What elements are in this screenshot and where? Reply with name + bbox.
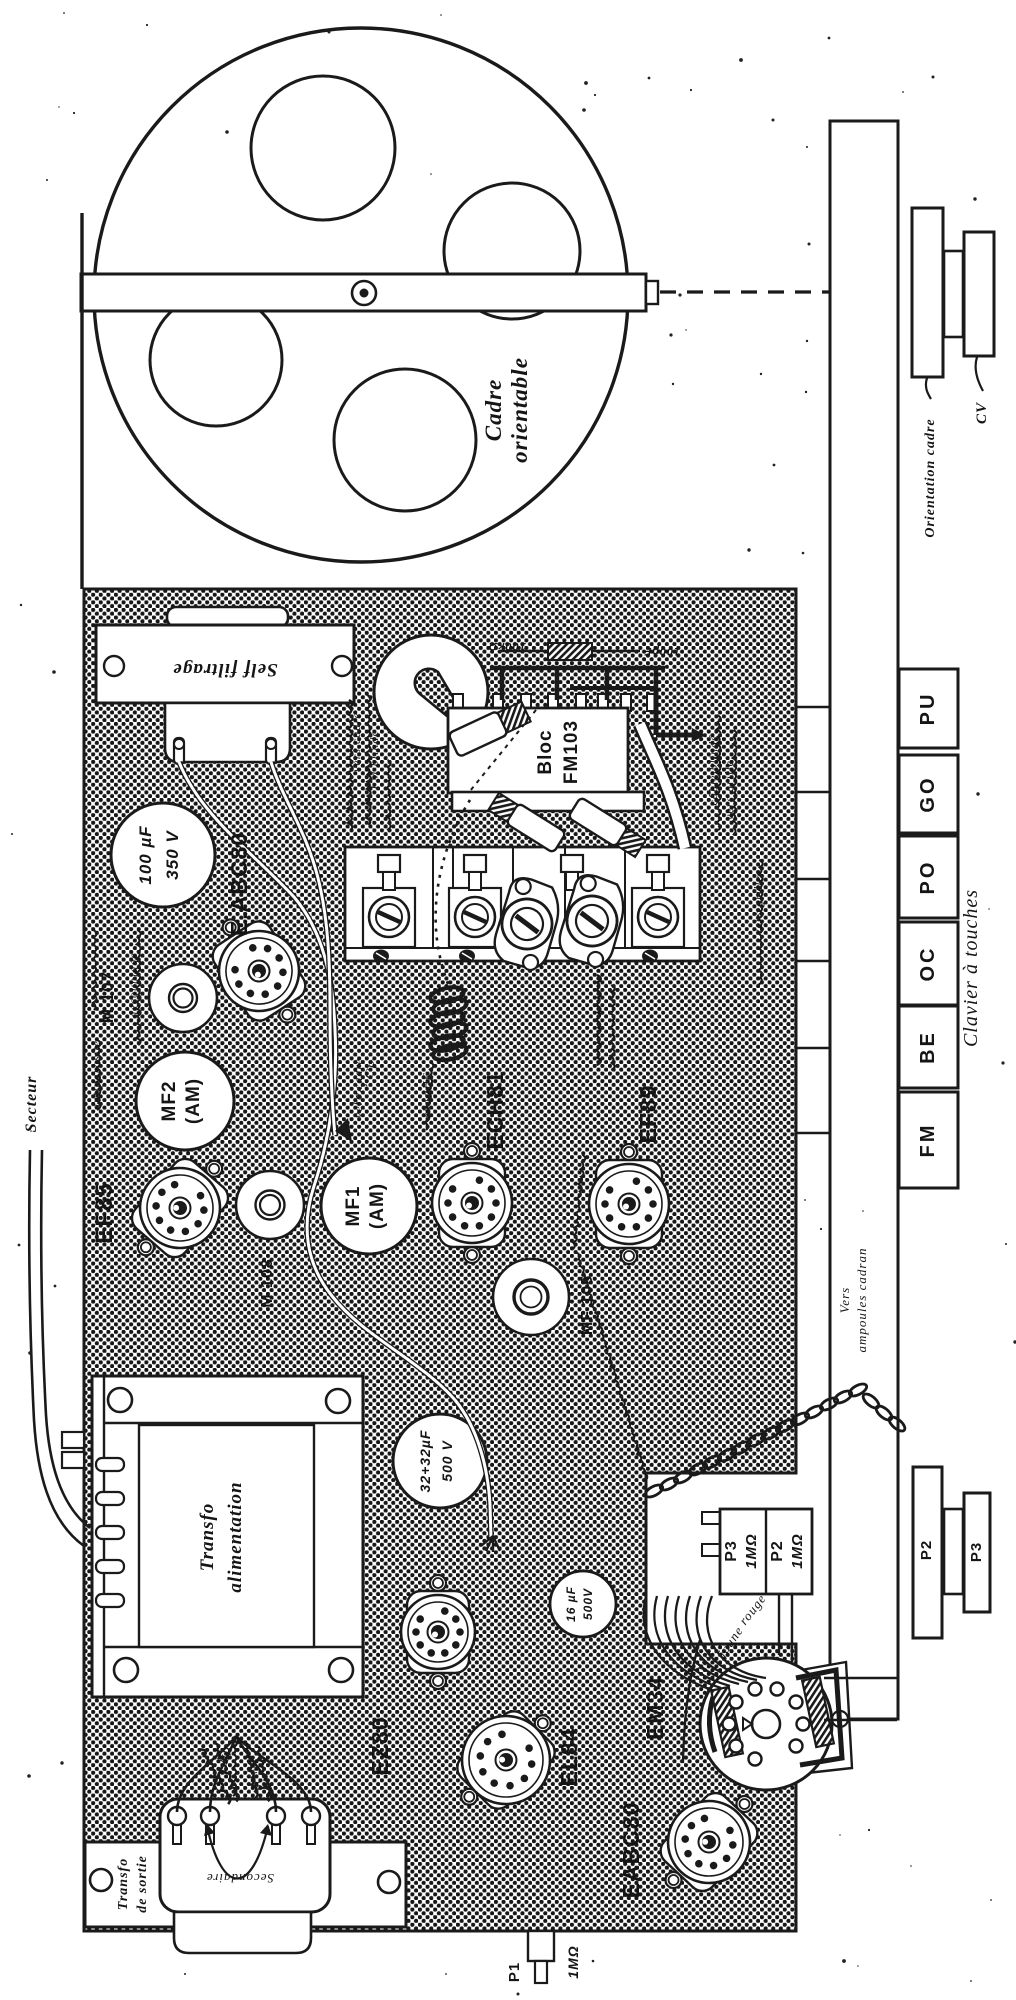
svg-text:(AM): (AM) (183, 1078, 204, 1124)
svg-text:500 V: 500 V (439, 1440, 455, 1482)
svg-text:P3: P3 (723, 1540, 740, 1562)
svg-text:EF85: EF85 (91, 1182, 118, 1243)
svg-text:alimentation: alimentation (225, 1481, 246, 1592)
svg-text:vers grille: vers grille (722, 760, 736, 820)
svg-text:EABC80: EABC80 (618, 1802, 644, 1899)
svg-text:ampoules cadran: ampoules cadran (854, 1248, 869, 1353)
svg-text:100 µF: 100 µF (136, 825, 155, 884)
svg-text:FM: FM (917, 1123, 939, 1158)
svg-text:1MΩ: 1MΩ (565, 1945, 581, 1978)
svg-text:ECH81: ECH81 (482, 1070, 508, 1149)
svg-text:1MΩ: 1MΩ (743, 1533, 760, 1569)
svg-text:de sortie: de sortie (135, 1855, 150, 1913)
svg-text:FM103: FM103 (561, 720, 582, 784)
svg-text:M 107: M 107 (98, 971, 117, 1023)
svg-text:Cadre: Cadre (481, 379, 506, 442)
svg-text:1MΩ: 1MΩ (789, 1533, 806, 1569)
svg-text:PO: PO (917, 860, 939, 895)
svg-text:16 µF: 16 µF (564, 1586, 578, 1622)
svg-text:BE: BE (917, 1030, 939, 1064)
svg-text:EZ80: EZ80 (367, 1717, 393, 1776)
svg-text:antiparasite: antiparasite (89, 1040, 103, 1110)
svg-text:Secteur: Secteur (23, 1076, 40, 1133)
svg-text:OC: OC (917, 946, 939, 982)
svg-text:MF2: MF2 (159, 1081, 180, 1122)
svg-text:Orientation cadre: Orientation cadre (923, 418, 938, 537)
svg-text:E.ABC80: E.ABC80 (226, 832, 252, 936)
svg-text:PU: PU (917, 692, 939, 726)
svg-text:P2: P2 (918, 1540, 935, 1560)
svg-text:EM34: EM34 (642, 1676, 668, 1740)
svg-text:(AM): (AM) (367, 1183, 388, 1229)
svg-text:100kΩ: 100kΩ (488, 640, 526, 652)
svg-text:Transfo: Transfo (197, 1503, 218, 1572)
svg-text:M 108: M 108 (259, 1258, 276, 1307)
svg-text:orientable: orientable (507, 357, 532, 463)
svg-text:350 V: 350 V (163, 830, 182, 880)
svg-text:P3: P3 (968, 1542, 985, 1562)
svg-text:CV: CV (974, 401, 990, 424)
svg-text:EL84: EL84 (556, 1728, 582, 1787)
svg-text:Bloc: Bloc (535, 729, 556, 774)
svg-text:MF1: MF1 (343, 1186, 364, 1227)
svg-text:500V: 500V (581, 1588, 595, 1620)
svg-text:Transfo: Transfo (116, 1858, 131, 1910)
svg-text:Clavier à touches: Clavier à touches (960, 889, 982, 1047)
svg-text:Vers: Vers (837, 1287, 852, 1313)
svg-text:Self filtrage: Self filtrage (172, 659, 277, 680)
svg-text:100pF: 100pF (644, 645, 681, 657)
svg-text:32+32µF: 32+32µF (417, 1430, 433, 1493)
svg-text:P1: P1 (506, 1962, 523, 1982)
svg-text:P2: P2 (769, 1540, 786, 1562)
svg-text:GO: GO (917, 775, 939, 812)
svg-text:EF89: EF89 (635, 1085, 661, 1144)
